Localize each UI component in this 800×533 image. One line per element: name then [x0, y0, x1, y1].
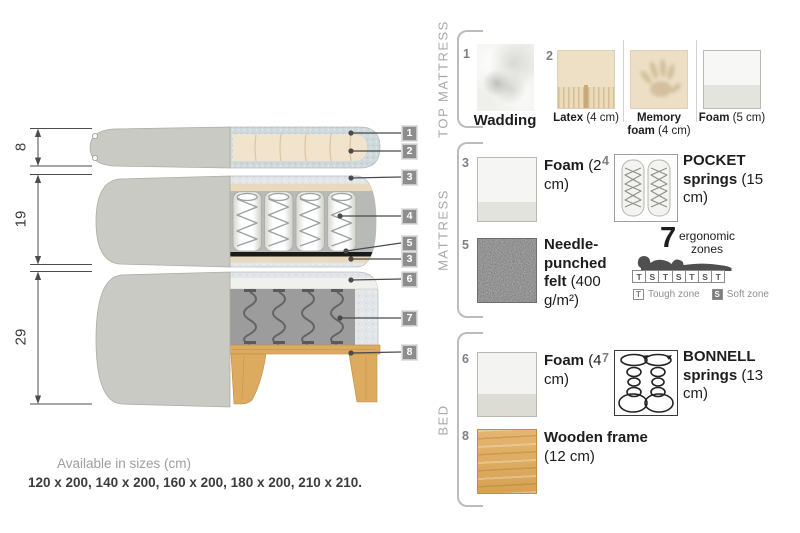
tough-zone-key-icon: T [633, 289, 644, 300]
ergonomic-zones-row: T S T S T S T [633, 270, 725, 283]
item-number-latex: 2 [546, 49, 553, 63]
callout-7: 7 [402, 311, 417, 326]
felt-photo [477, 238, 537, 303]
zone-box-3: T [658, 270, 672, 283]
callout-6: 6 [402, 272, 417, 287]
dimension-label-bed: 29 [13, 329, 30, 346]
pocket-springs-photo [614, 154, 678, 222]
wadding-label: Wadding [460, 114, 550, 127]
wooden-frame-photo [477, 429, 537, 494]
sizes-title: Available in sizes (cm) [57, 456, 191, 471]
latex-label: Latex (4 cm) [550, 112, 622, 125]
zone-box-5: T [685, 270, 699, 283]
foam4-name: Foam [544, 352, 584, 369]
item-number-foam2: 3 [462, 156, 469, 170]
dimension-label-top-mattress: 8 [13, 143, 30, 151]
sizes-values: 120 x 200, 140 x 200, 160 x 200, 180 x 2… [28, 475, 362, 490]
tough-zone-label: Tough zone [648, 289, 700, 300]
wooden-frame-name: Wooden frame [544, 429, 648, 446]
callout-4: 4 [402, 209, 417, 224]
callout-1: 1 [402, 126, 417, 141]
wooden-frame-label: Wooden frame (12 cm) [544, 429, 669, 466]
dimension-label-mattress: 19 [13, 211, 30, 228]
foam5-detail: (5 cm) [733, 112, 766, 124]
callout-5: 5 [402, 236, 417, 251]
divider-memory-foam5 [696, 40, 697, 122]
sleeping-person-icon [633, 250, 732, 271]
dimension-arrows [30, 129, 92, 405]
felt-texture [478, 239, 536, 302]
pocket-springs-name: POCKET springs [683, 152, 746, 188]
latex-notch [584, 85, 588, 108]
item-number-bonnell: 7 [602, 351, 609, 365]
section-label-mattress: MATTRESS [436, 189, 451, 271]
top-mattress-shape [90, 127, 380, 168]
pocket-springs-label: POCKET springs (15 cm) [683, 152, 771, 208]
zone-box-7: T [711, 270, 725, 283]
infographic-canvas: 8 19 29 1 2 3 4 5 3 6 7 8 TOP MATTRESS 1… [0, 0, 800, 533]
memory-foam-hand-imprint [631, 51, 687, 108]
foam4-photo [477, 352, 537, 417]
divider-latex-memory [623, 40, 624, 122]
zone-box-1: T [632, 270, 646, 283]
ergonomic-label-line1: ergonomic [677, 230, 737, 243]
bonnell-springs-drawing [615, 351, 676, 414]
memory-foam-label: Memory foam (4 cm) [622, 112, 696, 138]
foam2-photo [477, 157, 537, 222]
foam5-name: Foam [699, 112, 730, 124]
felt-label: Needle-punched felt (400 g/m²) [544, 236, 626, 310]
wadding-photo [477, 44, 534, 111]
item-number-felt: 5 [462, 238, 469, 252]
section-label-bed: BED [436, 404, 451, 435]
item-number-foam4: 6 [462, 352, 469, 366]
callout-3-top: 3 [402, 170, 417, 185]
item-number-pocket: 4 [602, 154, 609, 168]
soft-zone-label: Soft zone [727, 289, 769, 300]
memory-foam-photo [630, 50, 688, 109]
section-label-top-mattress: TOP MATTRESS [436, 20, 451, 138]
latex-name: Latex [553, 112, 583, 124]
item-number-wadding: 1 [463, 47, 470, 61]
callout-2: 2 [402, 144, 417, 159]
bed-cross-section-diagram [0, 0, 430, 533]
wadding-name: Wadding [474, 112, 537, 129]
item-number-frame: 8 [462, 429, 469, 443]
foam5-label: Foam (5 cm) [696, 112, 768, 125]
foam2-name: Foam [544, 157, 584, 174]
bonnell-springs-label: BONNELL springs (13 cm) [683, 348, 775, 404]
callout-8: 8 [402, 345, 417, 360]
wooden-frame-detail: (12 cm) [544, 448, 595, 465]
bonnell-springs-photo [614, 350, 678, 416]
bed-base-shape [96, 272, 380, 407]
soft-zone-key-icon: S [712, 289, 723, 300]
latex-detail: (4 cm) [586, 112, 619, 124]
memory-foam-detail: (4 cm) [658, 125, 691, 137]
latex-photo [557, 50, 615, 109]
pocket-springs-drawing [615, 155, 677, 221]
mattress-shape [96, 176, 376, 267]
zone-box-6: S [698, 270, 712, 283]
zone-legend: T Tough zone S Soft zone [633, 289, 769, 300]
callout-3-bottom: 3 [402, 252, 417, 267]
zone-box-2: S [645, 270, 659, 283]
zone-box-4: S [672, 270, 686, 283]
foam5-photo [703, 50, 761, 109]
